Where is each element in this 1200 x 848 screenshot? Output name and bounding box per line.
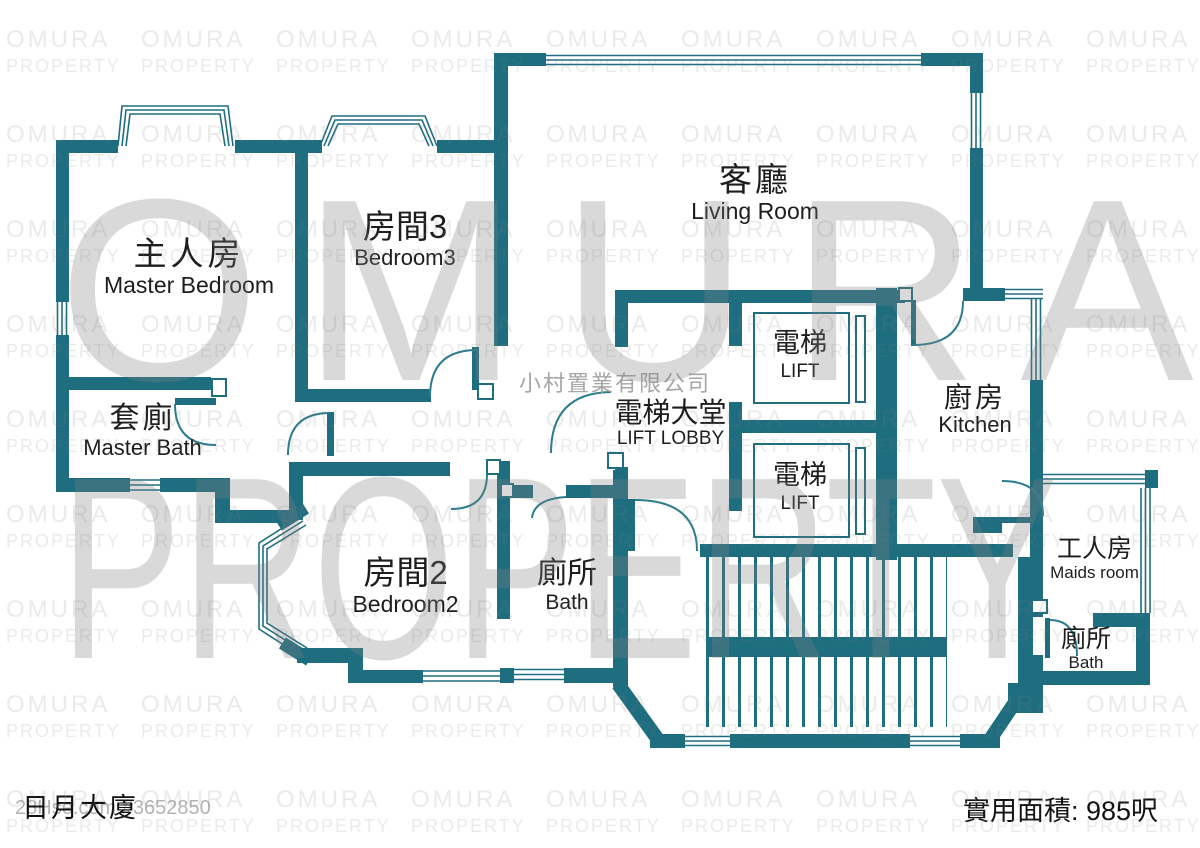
maids-room-top-window [1043,475,1145,484]
door-frame [898,287,913,302]
corridor-door-swing [288,413,330,455]
label-maids-bath-en: Bath [1028,653,1144,672]
bath-door-swing [532,497,566,518]
company-watermark: 小村置業有限公司 [519,366,711,398]
label-lift2: 電梯 LIFT [748,460,852,515]
master-bath-bottom-window [130,480,160,490]
label-lift1-en: LIFT [748,361,852,382]
door-frame [1031,599,1048,614]
label-lift-lobby-zh: 電梯大堂 [573,397,768,428]
label-maids-room-zh: 工人房 [1028,535,1161,563]
label-bedroom2-en: Bedroom2 [298,592,513,618]
stair-hall-chamfer-right [989,686,1026,741]
label-master-bath-zh: 套廁 [40,402,245,436]
label-bath-zh: 廁所 [508,557,626,591]
label-lift1-zh: 電梯 [748,328,852,358]
master-bedroom-bay-window [118,106,233,146]
label-bath-en: Bath [508,591,626,615]
bedroom3-door-swing [430,350,477,397]
kitchen-corner-window-v [1032,299,1041,380]
label-maids-bath-zh: 廁所 [1028,625,1144,653]
floor-plan: 主人房 Master Bedroom 房間3 Bedroom3 客廳 Livin… [0,0,1200,848]
label-master-bath: 套廁 Master Bath [40,402,245,460]
stair-hall-chamfer-left [618,684,659,741]
door-frame [211,378,227,397]
label-bedroom2: 房間2 Bedroom2 [298,555,513,618]
label-living-room: 客廳 Living Room [635,162,875,225]
kitchen-door-swing [913,301,963,345]
label-maids-room-en: Maids room [1028,563,1161,582]
label-lift-lobby-en: LIFT LOBBY [573,428,768,449]
label-lift2-zh: 電梯 [748,460,852,490]
kitchen-corner-window-h [1005,290,1043,299]
label-bedroom3-zh: 房間3 [300,209,510,246]
usable-area-label: 實用面積: 985呎 [963,789,1158,828]
living-room-right-window [972,92,981,148]
kitchen-south-door-swing [1002,481,1043,516]
bath-bottom-window [514,670,564,680]
label-bedroom3: 房間3 Bedroom3 [300,209,510,271]
door-frame [477,383,494,400]
master-bedroom-left-window [58,302,67,335]
building-name: 日月大廈 [22,786,138,825]
label-master-bedroom-en: Master Bedroom [58,273,320,299]
door-frame [607,452,624,469]
bedroom2-bottom-window [423,671,500,681]
label-lift-lobby: 電梯大堂 LIFT LOBBY [573,397,768,450]
label-bath: 廁所 Bath [508,557,626,614]
label-lift1: 電梯 LIFT [748,328,852,383]
bedroom3-bay-window [320,116,437,146]
label-maids-room: 工人房 Maids room [1028,535,1161,582]
stair-hall-window-right [910,737,960,746]
door-frame [500,483,514,498]
label-living-room-zh: 客廳 [635,162,875,199]
stair-hall-window-left [685,737,730,746]
label-kitchen: 廚房 Kitchen [903,382,1047,438]
label-living-room-en: Living Room [635,199,875,225]
lobby-lower-door-swing [635,500,697,551]
label-kitchen-zh: 廚房 [903,382,1047,413]
bedroom2-door-swing [451,474,487,509]
door-frame [486,459,501,475]
label-maids-bath: 廁所 Bath [1028,625,1144,672]
label-master-bath-en: Master Bath [40,436,245,461]
label-master-bedroom-zh: 主人房 [58,236,320,273]
label-bedroom2-zh: 房間2 [298,555,513,592]
label-lift2-en: LIFT [748,493,852,514]
label-bedroom3-en: Bedroom3 [300,246,510,271]
living-room-top-window [546,56,921,65]
label-master-bedroom: 主人房 Master Bedroom [58,236,320,299]
label-kitchen-en: Kitchen [903,413,1047,438]
